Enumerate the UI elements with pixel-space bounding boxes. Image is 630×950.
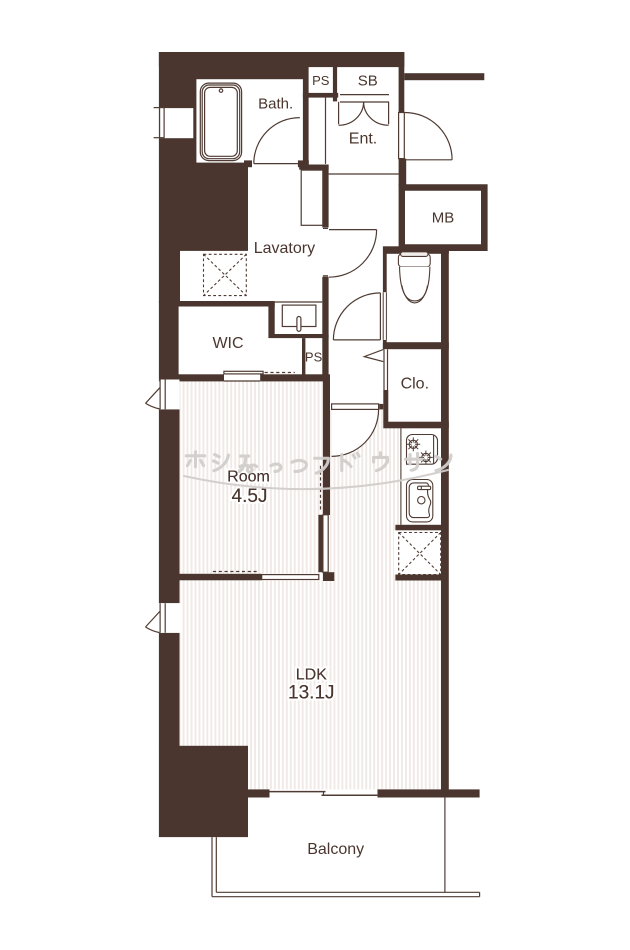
svg-text:4.5J: 4.5J	[232, 486, 268, 507]
svg-text:Bath.: Bath.	[258, 95, 293, 112]
svg-text:MB: MB	[432, 210, 455, 227]
svg-text:Ent.: Ent.	[349, 131, 377, 148]
svg-text:PS: PS	[305, 350, 323, 365]
svg-text:Lavatory: Lavatory	[254, 240, 315, 257]
svg-text:PS: PS	[312, 73, 330, 88]
svg-text:WIC: WIC	[212, 335, 243, 352]
svg-text:LDK: LDK	[296, 667, 327, 684]
svg-text:13.1J: 13.1J	[288, 683, 334, 704]
svg-text:Balcony: Balcony	[307, 841, 364, 858]
svg-text:SB: SB	[358, 73, 378, 90]
svg-text:Clo.: Clo.	[401, 376, 429, 393]
